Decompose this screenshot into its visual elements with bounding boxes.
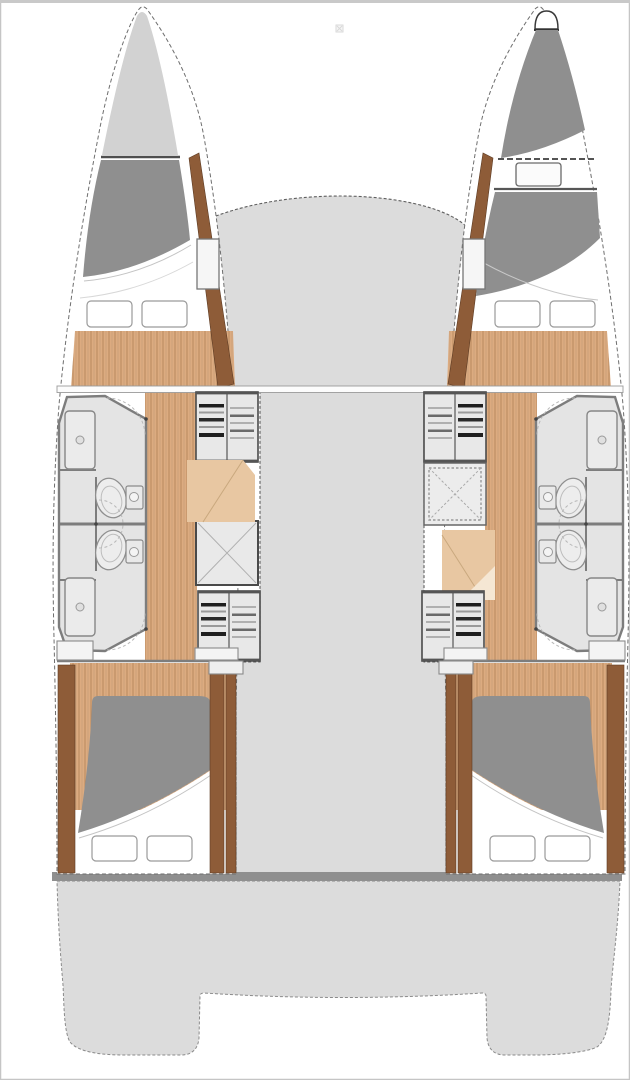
starboard-forward-stairs [424, 392, 486, 462]
port-heads [59, 396, 148, 651]
forepeak-deck-hatch [516, 163, 561, 186]
port-storage-hatch [196, 521, 258, 585]
port-nav-seat [187, 460, 255, 522]
catamaran-floor-plan [0, 0, 630, 1080]
starboard-heads [534, 396, 623, 651]
starboard-storage-hatch [424, 463, 486, 525]
starboard-forepeak-cap [535, 11, 558, 29]
floor-plan-page [0, 0, 630, 1080]
starboard-aft-cabin [439, 641, 625, 873]
broken-image-artifact-icon [336, 25, 343, 32]
port-forward-stairs [196, 392, 258, 462]
starboard-nav-seat [442, 530, 495, 600]
cockpit-transom-platform [57, 881, 620, 1055]
port-aft-cabin [57, 641, 243, 873]
